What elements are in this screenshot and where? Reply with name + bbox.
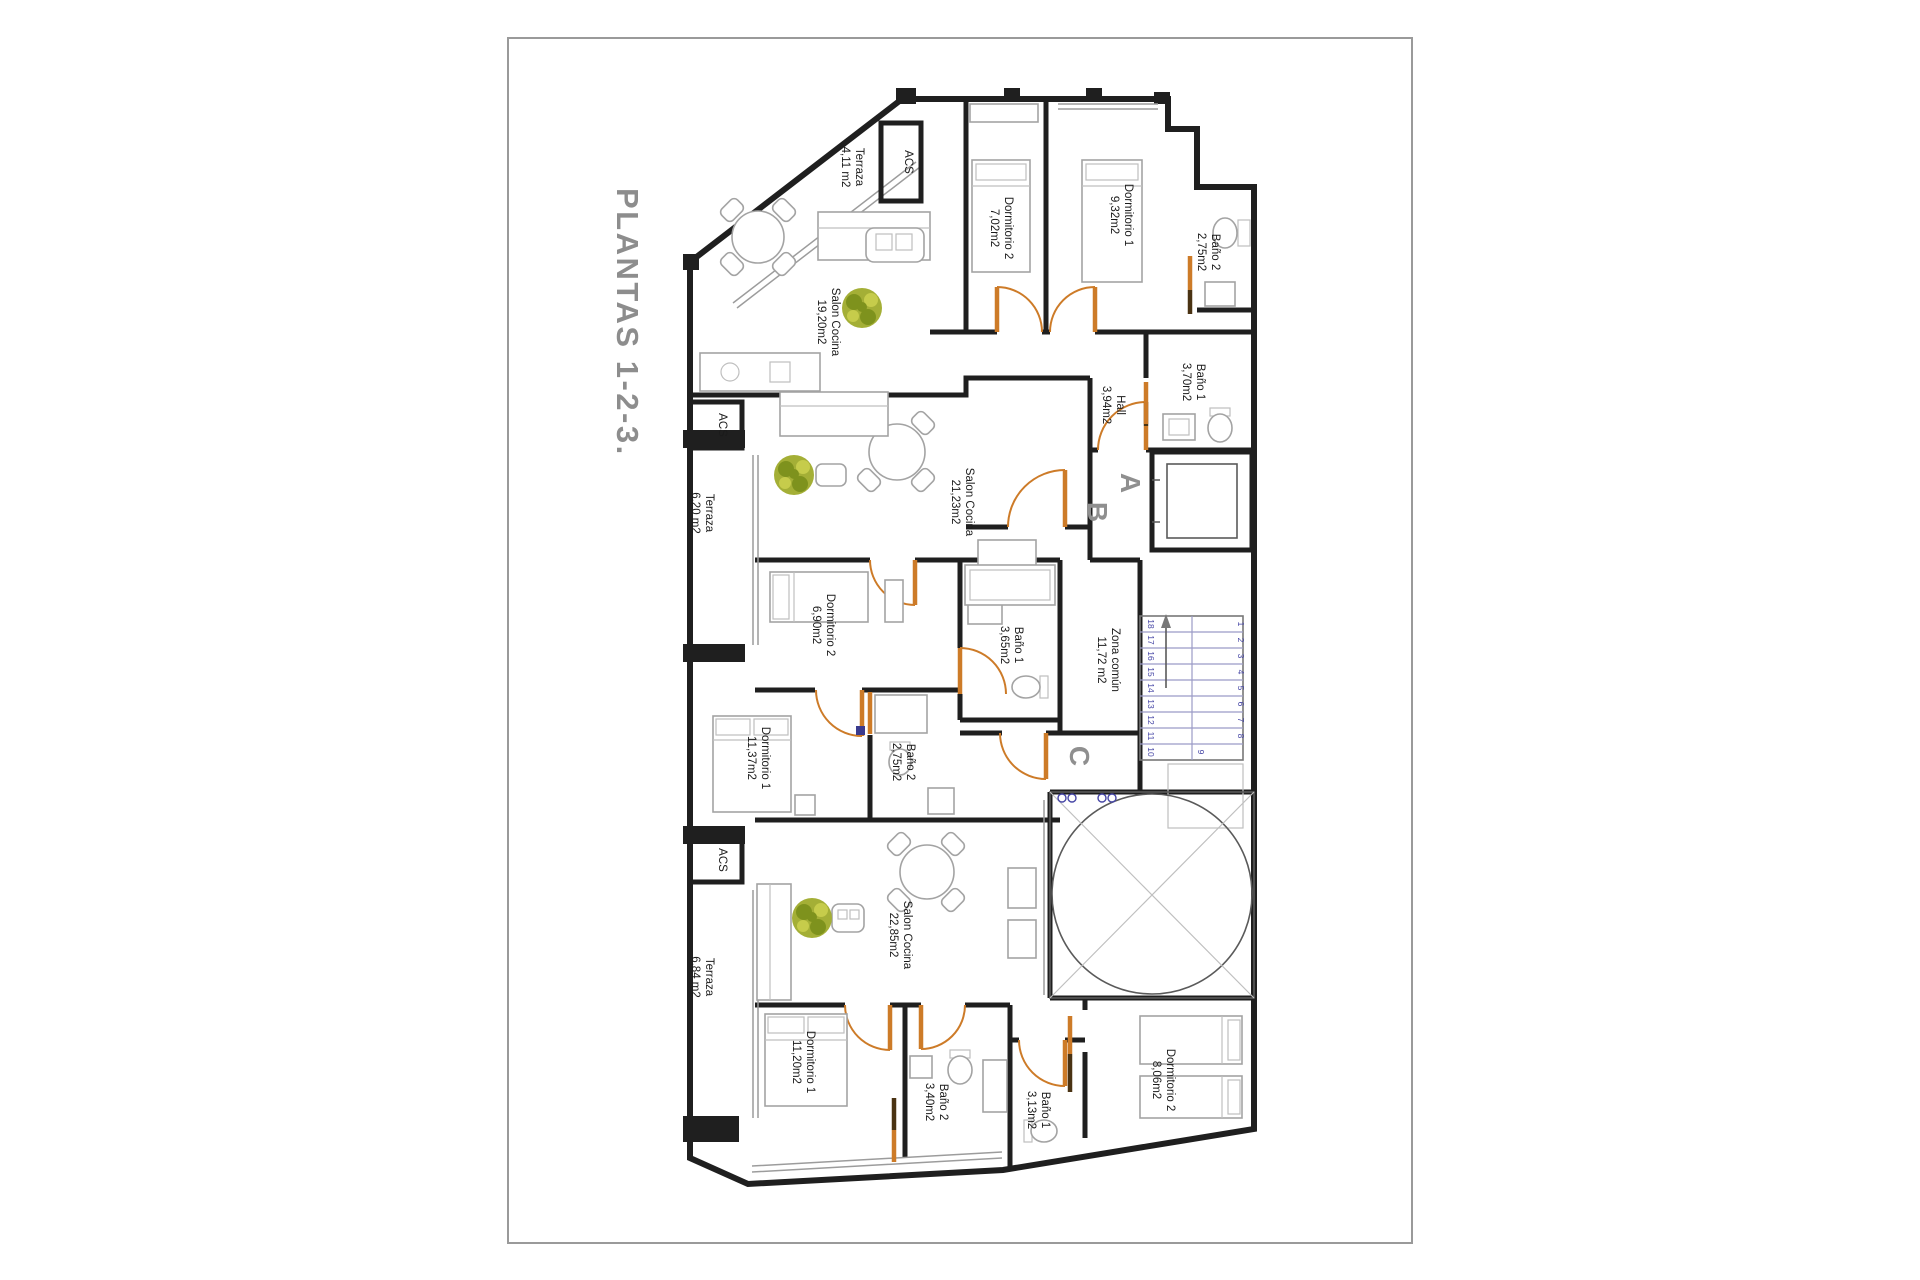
room-area: 3,13m2 [1025,1091,1037,1129]
sink-icon [1205,282,1235,306]
room-name: ACS [716,848,728,872]
room-name: Terraza [853,148,865,187]
floor-plan-svg: PLANTAS 1-2-3. [0,0,1920,1280]
page-title: PLANTAS 1-2-3. [610,188,645,457]
room-name: ACS [902,150,914,174]
bed-icon [1140,1016,1242,1064]
stair-number: 11 [1146,732,1156,741]
room-area: 3,94m2 [1100,386,1112,424]
sofa-icon [757,884,791,1000]
floor-plan-page: PLANTAS 1-2-3. [0,0,1920,1280]
stair-number: 10 [1146,747,1156,757]
room-name: Hall [1114,395,1126,415]
stair-number: 4 [1236,670,1246,675]
wardrobe-icon [970,104,1038,122]
stair-number: 16 [1146,651,1156,661]
sink-icon [910,1056,932,1078]
shower-icon [965,565,1055,605]
stair-number: 18 [1146,619,1156,629]
room-name: Dormitorio 2 [1164,1049,1176,1112]
sink-icon [1163,414,1195,440]
room-label-c-acs: ACS [716,848,728,872]
stair-number: 13 [1146,699,1156,709]
room-area: 6,84 m2 [689,956,701,998]
kitchen-unit-icon [866,228,924,262]
stair-number: 1 [1236,622,1246,627]
unit-letter-a: A [1115,473,1146,493]
room-name: Salon Cocina [901,901,913,970]
room-name: Salon Cocina [829,288,841,357]
room-area: 9,32m2 [1108,196,1120,234]
plant-icon [842,288,882,328]
room-name: Baño 2 [937,1084,949,1120]
room-name: Baño 2 [904,744,916,780]
room-area: 6,20 m2 [689,492,701,534]
unit-letter-c: C [1064,746,1095,766]
room-name: Dormitorio 1 [804,1031,816,1094]
room-name: Baño 1 [1039,1092,1051,1128]
kitchen-counter-icon [700,353,820,391]
room-name: Baño 2 [1209,234,1221,270]
room-area: 11,20m2 [790,1040,802,1084]
stair-number: 2 [1236,638,1246,643]
plant-icon [774,455,814,495]
room-area: 3,70m2 [1180,363,1192,401]
room-name: Dormitorio 1 [1122,184,1134,247]
room-area: 21,23m2 [949,480,961,525]
stair-number: 12 [1146,715,1156,725]
bed-icon [972,160,1030,272]
room-area: 8,06m2 [1150,1061,1162,1099]
room-area: 2,75m2 [1195,233,1207,271]
room-name: Dormitorio 1 [759,727,771,790]
room-name: Terraza [703,958,715,997]
room-area: 19,20m2 [815,300,827,345]
room-name: Baño 1 [1012,627,1024,663]
sink-icon [928,788,954,814]
room-area: 7,02m2 [988,209,1000,247]
unit-letter-b: B [1082,502,1113,522]
room-area: 3,40m2 [923,1083,935,1121]
desk-icon [885,580,903,622]
stair-number: 14 [1146,683,1156,693]
room-name: Dormitorio 2 [824,594,836,657]
stair-number: 15 [1146,667,1156,677]
stair-number: 5 [1236,686,1246,691]
plant-icon [792,898,832,938]
stair-number: 8 [1236,734,1246,739]
room-area: 6,90m2 [810,606,822,644]
room-name: ACS [716,413,728,437]
room-area: 11,37m2 [745,736,757,780]
room-name: Baño 1 [1194,364,1206,400]
room-name: Terraza [703,494,715,533]
room-name: Zona común [1109,628,1121,692]
room-area: 4,11 m2 [839,147,851,188]
stair-number: 7 [1236,718,1246,723]
room-name: Dormitorio 2 [1002,197,1014,260]
stair-number: 9 [1196,750,1206,755]
stair-number: 17 [1146,635,1156,645]
stair-number: 3 [1236,654,1246,659]
shower-icon [983,1060,1007,1112]
kitchen-unit-icon [832,904,864,932]
room-area: 3,65m2 [998,626,1010,664]
nightstand-icon [795,795,815,815]
side-table-icon [816,464,846,486]
room-area: 2,75m2 [890,743,902,781]
room-name: Salon Cocina [963,468,975,537]
room-label-b-acs: ACS [716,413,728,437]
room-area: 22,85m2 [887,913,899,958]
room-area: 11,72 m2 [1095,636,1107,683]
sofa-icon [780,392,888,436]
page-title-text: PLANTAS 1-2-3. [610,188,645,457]
room-label-a-acs: ACS [902,150,914,174]
stair-number: 6 [1236,702,1246,707]
